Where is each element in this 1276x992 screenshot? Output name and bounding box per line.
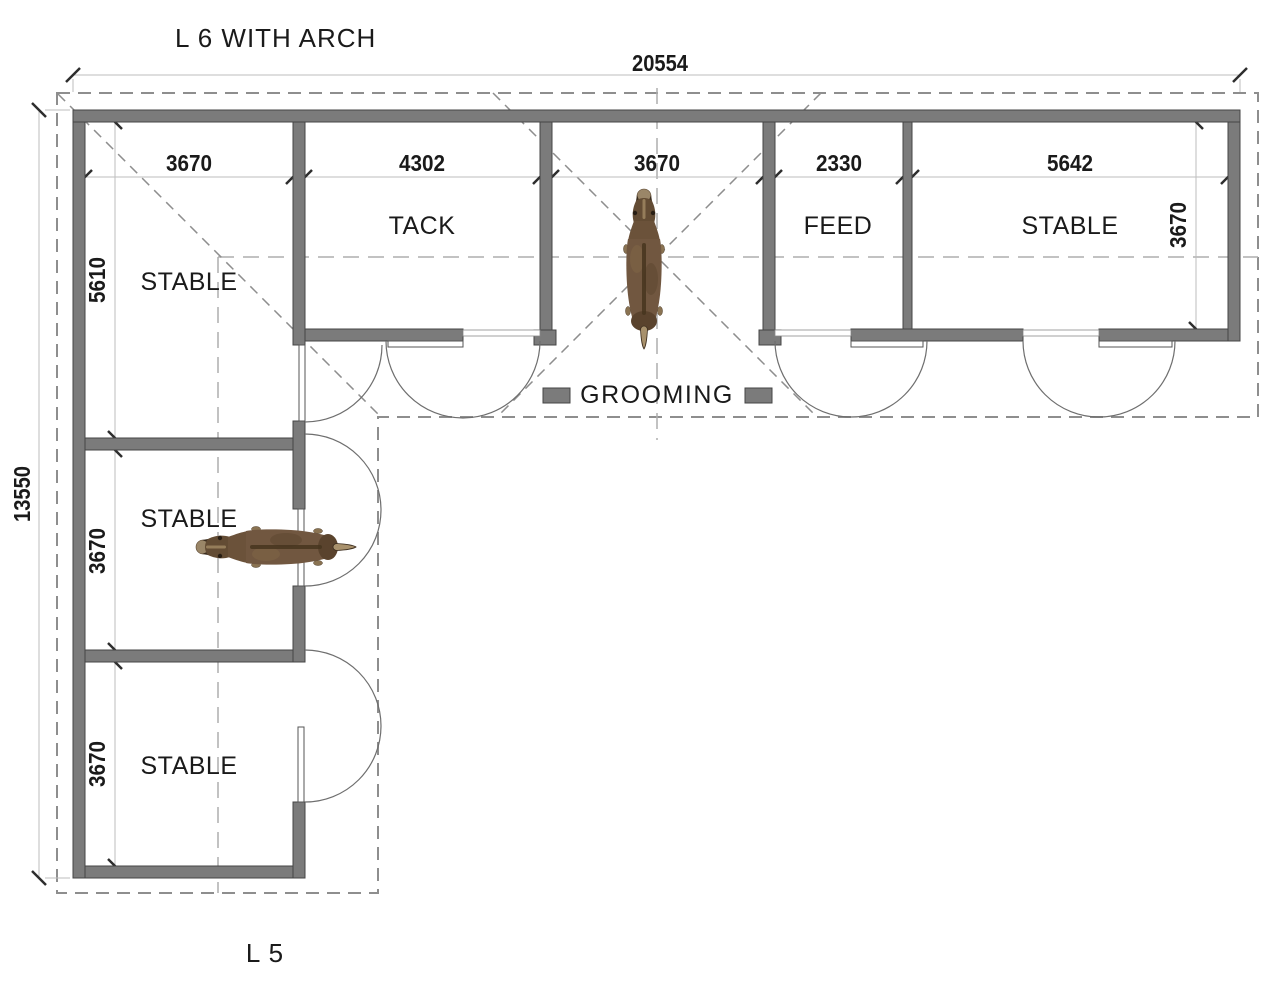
room-label-middle-stable: STABLE	[140, 505, 237, 533]
plan-variant-label: L 5	[246, 938, 284, 968]
dim-grooming-width: 3670	[634, 150, 680, 176]
dim-bottom-stable-height: 3670	[84, 741, 110, 787]
room-label-corner-stable: STABLE	[140, 268, 237, 296]
dim-right-stable-width: 5642	[1047, 150, 1093, 176]
dim-overall-width: 20554	[632, 50, 688, 76]
room-label-bottom-stable: STABLE	[140, 752, 237, 780]
dim-wing-depth: 3670	[1165, 202, 1191, 248]
doors	[298, 330, 1175, 802]
post-left	[543, 388, 570, 403]
horse-top-view-icon	[624, 189, 665, 349]
room-label-tack: TACK	[389, 212, 456, 240]
roof-centerlines	[218, 88, 1258, 893]
dim-tack-width: 4302	[399, 150, 445, 176]
dim-feed-width: 2330	[816, 150, 862, 176]
room-label-grooming: GROOMING	[580, 381, 734, 409]
dim-middle-stable-height: 3670	[84, 528, 110, 574]
dim-corner-stable-width: 3670	[166, 150, 212, 176]
dim-corner-stable-height: 5610	[84, 257, 110, 303]
room-label-right-stable: STABLE	[1021, 212, 1118, 240]
plan-title: L 6 WITH ARCH	[175, 23, 376, 53]
roof-valley-and-arch-lines	[58, 93, 821, 417]
post-right	[745, 388, 772, 403]
dim-overall-height: 13550	[9, 466, 35, 522]
floor-plan-page: L 6 WITH ARCH L 5 20554 13550 3670 4302 …	[0, 0, 1276, 992]
floor-plan-drawing: L 6 WITH ARCH L 5 20554 13550 3670 4302 …	[0, 0, 1276, 992]
room-label-feed: FEED	[804, 212, 873, 240]
